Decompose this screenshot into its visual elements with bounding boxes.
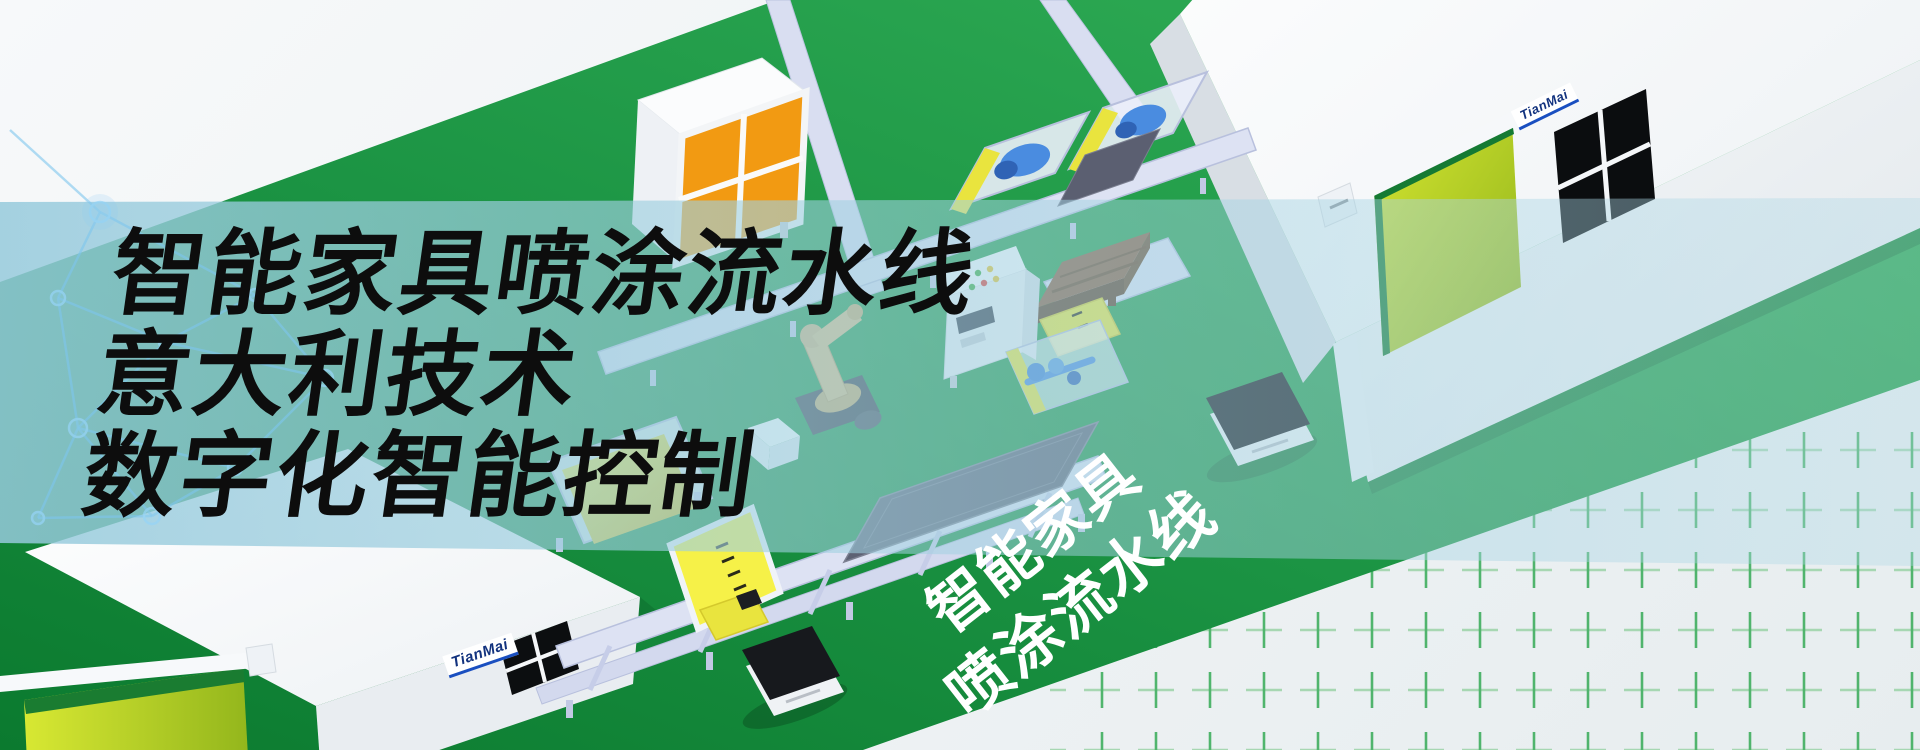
headline-line-3: 数字化智能控制 bbox=[77, 426, 955, 527]
headline-line-1: 智能家具喷涂流水线 bbox=[105, 224, 983, 325]
headline-block: 智能家具喷涂流水线 意大利技术 数字化智能控制 bbox=[77, 224, 984, 527]
banner-stage: 智能家具喷涂流水线 意大利技术 数字化智能控制 智能家具 喷涂流水线 TianM… bbox=[0, 0, 1920, 750]
headline-line-2: 意大利技术 bbox=[91, 325, 969, 426]
building-b-beam-cap bbox=[246, 644, 276, 676]
